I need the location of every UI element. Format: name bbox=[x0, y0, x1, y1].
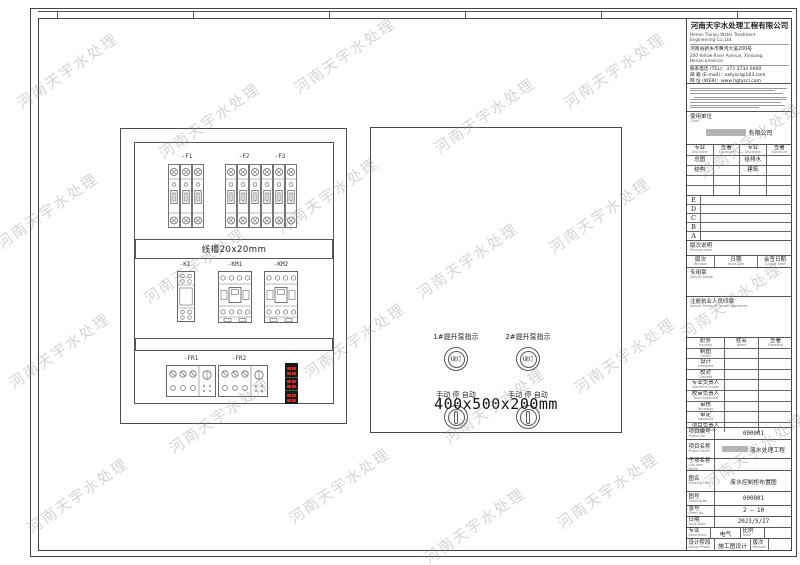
staff-role: 校对Checked bbox=[687, 370, 725, 380]
overload-label-fr1: -FR1 bbox=[184, 355, 198, 362]
cabinet-dimension-text: 400x500x200mm bbox=[371, 395, 621, 413]
staff-row: 专业负责人Specialist Leader bbox=[687, 380, 792, 391]
breaker-label-f1: -F1 bbox=[182, 153, 193, 160]
sign-header-row: 专业Discipline 签署Signature 专业Discipline 签署… bbox=[687, 145, 792, 156]
revision-row: C bbox=[687, 214, 792, 223]
terminal-red-marker bbox=[287, 385, 290, 388]
project-no-label: 项目编号Project No. bbox=[687, 428, 715, 439]
company-address-en: 200 Yellow River Avenue, Xinxiang, Henan… bbox=[690, 53, 789, 63]
company-name-cn: 河南天宇水处理工程有限公司 bbox=[690, 21, 789, 30]
terminal-red-marker bbox=[292, 385, 295, 388]
terminal-red-marker bbox=[292, 380, 295, 383]
sign-cell: 给排水 bbox=[740, 156, 767, 165]
notes-texture bbox=[690, 90, 775, 91]
staff-name-cell bbox=[725, 349, 759, 359]
sign-cell bbox=[687, 176, 714, 185]
sign-cell bbox=[714, 166, 741, 175]
lamp-lens: 绿灯 bbox=[448, 351, 465, 368]
sign-cell bbox=[714, 176, 741, 185]
sign-cell bbox=[687, 186, 714, 195]
relay-k1 bbox=[177, 271, 195, 322]
wire-duct-bottom bbox=[135, 338, 333, 351]
sign-cell: 总图 bbox=[687, 156, 714, 165]
lamp-text: 绿灯 bbox=[522, 355, 533, 363]
drawing-title-value: 废水控制柜布置图 bbox=[715, 471, 792, 491]
staff-role-en: Specialist Leader bbox=[692, 386, 719, 390]
strip-divider bbox=[57, 12, 58, 19]
discipline-scale-row: 专业Description 电气 比例Scale bbox=[687, 528, 792, 539]
staff-sign-cell bbox=[759, 370, 792, 380]
sign-header: 签署Signature bbox=[714, 145, 741, 155]
terminal-red-marker bbox=[287, 399, 290, 402]
company-address-cn: 河南省新乡市黄河大道200号 bbox=[690, 44, 789, 53]
label-en: Design Phase bbox=[689, 546, 713, 550]
staff-role-en: Reviewed bbox=[698, 408, 713, 412]
label-en: Description bbox=[689, 534, 709, 538]
grid-reference-strip bbox=[38, 11, 792, 18]
drawing-no-value: 000001 bbox=[715, 492, 792, 505]
staff-row: 制图Drawn bbox=[687, 349, 792, 360]
label-en: Project Name bbox=[689, 450, 713, 454]
notes-texture bbox=[694, 97, 787, 98]
sign-cell bbox=[714, 156, 741, 165]
staff-sign-cell bbox=[759, 412, 792, 422]
subitem-row: 子项名称Sub-item Name bbox=[687, 459, 792, 471]
sign-header-en: Signature bbox=[772, 151, 787, 155]
sign-cell bbox=[767, 156, 793, 165]
sign-cell: 结构 bbox=[687, 166, 714, 175]
subitem-value bbox=[715, 459, 792, 470]
sheet-no-row: 张号Sheet No. 2 — 10 bbox=[687, 506, 792, 517]
staff-role: 设计Designed bbox=[687, 359, 725, 369]
project-name-row: 项目名称Project Name 废水处理工程 bbox=[687, 440, 792, 459]
staff-header-en: Signature bbox=[768, 344, 783, 348]
terminal-separator bbox=[285, 377, 298, 378]
discipline-signature-table: 专业Discipline 签署Signature 专业Discipline 签署… bbox=[687, 145, 792, 196]
staff-header-en: Function bbox=[699, 344, 713, 348]
revision-col-en: Issue Date bbox=[728, 263, 745, 267]
sign-header: 专业Discipline bbox=[687, 145, 714, 155]
breaker-label-f3: -F3 bbox=[275, 153, 286, 160]
revision-row: A bbox=[687, 232, 792, 240]
terminal-red-marker bbox=[292, 367, 295, 370]
redaction-bar bbox=[722, 446, 748, 452]
overload-relay-fr1 bbox=[166, 365, 216, 397]
project-name-text: 废水处理工程 bbox=[750, 445, 785, 454]
relay-label-k1: -K1 bbox=[180, 261, 191, 268]
staff-header: 姓名Name bbox=[725, 338, 759, 348]
redaction-bar bbox=[706, 129, 746, 136]
company-name-en-line2: Engineering Co.,Ltd. bbox=[690, 37, 789, 42]
revision-label: 版次Revision bbox=[751, 539, 769, 551]
drawing-no-label: 图号Drawing No. bbox=[687, 492, 715, 505]
project-name-value: 废水处理工程 bbox=[715, 440, 792, 458]
phase-value: 施工图设计 bbox=[715, 539, 751, 551]
revision-note-en: Revision Note bbox=[690, 249, 789, 253]
strip-divider bbox=[465, 12, 466, 19]
registered-stamp-label-en: Special Stamp Of Person Registered bbox=[690, 305, 789, 309]
date-label: 日期Issue Date bbox=[687, 517, 715, 527]
wire-duct-label: 线槽20x20mm bbox=[202, 243, 267, 255]
phase-revision-row: 设计阶段Design Phase 施工图设计 版次Revision bbox=[687, 539, 792, 551]
terminal-red-marker bbox=[287, 394, 290, 397]
sign-cell bbox=[767, 166, 793, 175]
terminal-block-strip bbox=[285, 363, 298, 404]
sign-header-en: Discipline bbox=[692, 151, 707, 155]
staff-row: 校审负责人Team Approved bbox=[687, 391, 792, 402]
staff-role-en: Designed bbox=[698, 365, 713, 369]
sign-header: 签署Signature bbox=[767, 145, 793, 155]
company-address-en-line2: Henan province bbox=[690, 58, 789, 63]
phase-label: 设计阶段Design Phase bbox=[687, 539, 715, 551]
label-en: Issue Date bbox=[689, 523, 713, 527]
revision-row: E bbox=[687, 196, 792, 205]
staff-name-cell bbox=[725, 402, 759, 412]
circuit-breaker-f1 bbox=[168, 163, 206, 229]
revision-note-cell: 版次说明 Revision Note bbox=[687, 241, 792, 256]
contactor-km2 bbox=[264, 271, 298, 323]
breaker-label-f2: -F2 bbox=[239, 153, 250, 160]
staff-role-en: Drawn bbox=[700, 355, 710, 359]
terminal-red-marker bbox=[287, 372, 290, 375]
terminal-separator bbox=[285, 390, 298, 391]
revision-row: D bbox=[687, 205, 792, 214]
revision-letter-rows: E D C B A bbox=[687, 196, 792, 241]
label-en: Scale bbox=[743, 534, 763, 538]
revision-row: B bbox=[687, 223, 792, 232]
drawing-title-row: 图名Drawing Title 废水控制柜布置图 bbox=[687, 471, 792, 492]
pump1-indicator-label: 1#提升泵指示 bbox=[433, 332, 478, 342]
revision-empty bbox=[701, 214, 792, 222]
subitem-label: 子项名称Sub-item Name bbox=[687, 459, 715, 470]
project-no-value: 000001 bbox=[715, 428, 792, 439]
sign-cell bbox=[740, 186, 767, 195]
revision-empty bbox=[701, 205, 792, 213]
staff-role: 校审负责人Team Approved bbox=[687, 391, 725, 401]
staff-row: 审定Approved bbox=[687, 412, 792, 423]
staff-sign-cell bbox=[759, 359, 792, 369]
pump1-indicator-lamp: 绿灯 bbox=[444, 347, 468, 371]
sheet-no-label: 张号Sheet No. bbox=[687, 506, 715, 516]
lamp-lens: 绿灯 bbox=[520, 351, 537, 368]
staff-row: 设计Designed bbox=[687, 359, 792, 370]
staff-role: 审核Reviewed bbox=[687, 402, 725, 412]
client-section: 使用单位 Client 有限公司 bbox=[687, 112, 792, 145]
sign-cell bbox=[767, 186, 793, 195]
staff-role: 制图Drawn bbox=[687, 349, 725, 359]
terminal-red-marker bbox=[287, 380, 290, 383]
discipline-value: 电气 bbox=[711, 528, 741, 538]
scale-label: 比例Scale bbox=[741, 528, 765, 538]
revision-letter: B bbox=[687, 223, 701, 231]
label-en: Sheet No. bbox=[689, 512, 713, 516]
strip-divider bbox=[329, 12, 330, 19]
staff-header: 职务Function bbox=[687, 338, 725, 348]
date-value: 2023/5/27 bbox=[715, 517, 792, 527]
label-en: Revision bbox=[753, 546, 767, 550]
terminal-red-marker bbox=[292, 399, 295, 402]
sign-cell bbox=[740, 176, 767, 185]
sign-cell: 建筑 bbox=[740, 166, 767, 175]
revision-col: 版次Revision bbox=[687, 256, 715, 267]
wire-duct-top: 线槽20x20mm bbox=[135, 239, 333, 259]
staff-header: 签署Signature bbox=[759, 338, 792, 348]
revision-col: 会签日期Consult Date bbox=[758, 256, 792, 267]
contactor-km1 bbox=[218, 271, 252, 323]
sign-row bbox=[687, 186, 792, 195]
staff-name-cell bbox=[725, 391, 759, 401]
staff-name-cell bbox=[725, 380, 759, 390]
terminal-red-marker bbox=[292, 394, 295, 397]
drawing-title-label: 图名Drawing Title bbox=[687, 471, 715, 491]
overload-label-fr2: -FR2 bbox=[232, 355, 246, 362]
sign-header-en: Discipline bbox=[745, 151, 760, 155]
company-header: 河南天宇水处理工程有限公司 Henan Tianyu Water Treatme… bbox=[687, 18, 792, 84]
notes-texture bbox=[690, 88, 787, 89]
notes-texture bbox=[690, 99, 786, 100]
contactor-label-km2: -KM2 bbox=[274, 261, 288, 268]
lamp-text: 绿灯 bbox=[450, 355, 461, 363]
copyright-notes bbox=[687, 84, 792, 112]
client-value-suffix: 有限公司 bbox=[748, 128, 772, 137]
title-block: 河南天宇水处理工程有限公司 Henan Tianyu Water Treatme… bbox=[686, 18, 792, 551]
sheet-no-value: 2 — 10 bbox=[715, 506, 792, 516]
terminal-red-marker bbox=[292, 372, 295, 375]
discipline-label: 专业Description bbox=[687, 528, 711, 538]
staff-row: 审核Reviewed bbox=[687, 402, 792, 413]
notes-texture bbox=[690, 107, 759, 108]
company-contact: 联系电话 (TEL)：373 3733 0000 邮 箱 (E-mail)：xx… bbox=[690, 65, 789, 86]
staff-name-cell bbox=[725, 370, 759, 380]
terminal-red-marker bbox=[287, 367, 290, 370]
staff-name-cell bbox=[725, 412, 759, 422]
revision-empty bbox=[701, 232, 792, 240]
registered-stamp-box: 注册执业人员印章 Special Stamp Of Person Registe… bbox=[687, 297, 792, 338]
staff-role-en: Team Approved bbox=[693, 397, 718, 401]
sign-header: 专业Discipline bbox=[740, 145, 767, 155]
drawing-sheet: 河南天宇水处理 河南天宇水处理 河南天宇水处理 河南天宇水处理 河南天宇水处理 … bbox=[0, 0, 800, 565]
staff-signature-table: 职务Function 姓名Name 签署Signature 制图Drawn 设计… bbox=[687, 338, 792, 428]
revision-letter: C bbox=[687, 214, 701, 222]
staff-sign-cell bbox=[759, 402, 792, 412]
date-row: 日期Issue Date 2023/5/27 bbox=[687, 517, 792, 528]
project-no-row: 项目编号Project No. 000001 bbox=[687, 428, 792, 440]
special-stamp-box: 专用章 Special Stamp bbox=[687, 268, 792, 297]
label-en: Drawing Title bbox=[689, 482, 713, 486]
revision-empty bbox=[701, 223, 792, 231]
client-value: 有限公司 bbox=[690, 128, 789, 137]
special-stamp-label-en: Special Stamp bbox=[690, 276, 789, 280]
staff-role-en: Checked bbox=[699, 376, 713, 380]
staff-name-cell bbox=[725, 359, 759, 369]
sign-row: 结构 建筑 bbox=[687, 166, 792, 176]
scale-value bbox=[765, 528, 792, 538]
label-en: Drawing No. bbox=[689, 500, 713, 504]
sign-header-en: Signature bbox=[719, 151, 734, 155]
label-en: Project No. bbox=[689, 435, 713, 439]
staff-sign-cell bbox=[759, 391, 792, 401]
staff-header-en: Name bbox=[737, 344, 746, 348]
pump2-indicator-label: 2#提升泵指示 bbox=[505, 332, 550, 342]
circuit-breaker-f2-f3 bbox=[225, 163, 299, 229]
staff-sign-cell bbox=[759, 380, 792, 390]
revision-letter: A bbox=[687, 232, 701, 240]
staff-role-en: Approved bbox=[698, 418, 713, 422]
revision-col: 日期Issue Date bbox=[715, 256, 758, 267]
contactor-label-km1: -KM1 bbox=[228, 261, 242, 268]
staff-row: 校对Checked bbox=[687, 370, 792, 381]
cabinet-door-panel: 1#提升泵指示 2#提升泵指示 绿灯 绿灯 手动 停 自动 手动 停 自动 40… bbox=[370, 127, 622, 433]
client-label-en: Client bbox=[690, 120, 789, 124]
revision-empty bbox=[701, 196, 792, 204]
revision-letter: E bbox=[687, 196, 701, 204]
sign-cell bbox=[767, 176, 793, 185]
revision-columns-row: 版次Revision 日期Issue Date 会签日期Consult Date bbox=[687, 256, 792, 268]
pump2-indicator-lamp: 绿灯 bbox=[516, 347, 540, 371]
cabinet-mounting-plate: -F1 -F2 -F3 线槽20x20mm -K1 -KM1 -KM2 -FR1… bbox=[134, 142, 334, 404]
sign-cell bbox=[714, 186, 741, 195]
project-name-label: 项目名称Project Name bbox=[687, 440, 715, 458]
revision-col-en: Revision bbox=[694, 263, 707, 267]
notes-texture bbox=[690, 102, 781, 103]
revision-value bbox=[769, 539, 792, 551]
strip-divider bbox=[601, 12, 602, 19]
staff-role: 审定Approved bbox=[687, 412, 725, 422]
revision-letter: D bbox=[687, 205, 701, 213]
notes-texture bbox=[690, 105, 785, 106]
company-name-en: Henan Tianyu Water Treatment Engineering… bbox=[690, 32, 789, 42]
revision-col-en: Consult Date bbox=[765, 263, 786, 267]
sign-row bbox=[687, 176, 792, 186]
drawing-no-row: 图号Drawing No. 000001 bbox=[687, 492, 792, 506]
overload-relay-fr2 bbox=[218, 365, 268, 397]
staff-header-row: 职务Function 姓名Name 签署Signature bbox=[687, 338, 792, 349]
staff-role: 专业负责人Specialist Leader bbox=[687, 380, 725, 390]
sign-row: 总图 给排水 bbox=[687, 156, 792, 166]
strip-divider bbox=[193, 12, 194, 19]
staff-sign-cell bbox=[759, 349, 792, 359]
notes-texture bbox=[690, 93, 783, 94]
